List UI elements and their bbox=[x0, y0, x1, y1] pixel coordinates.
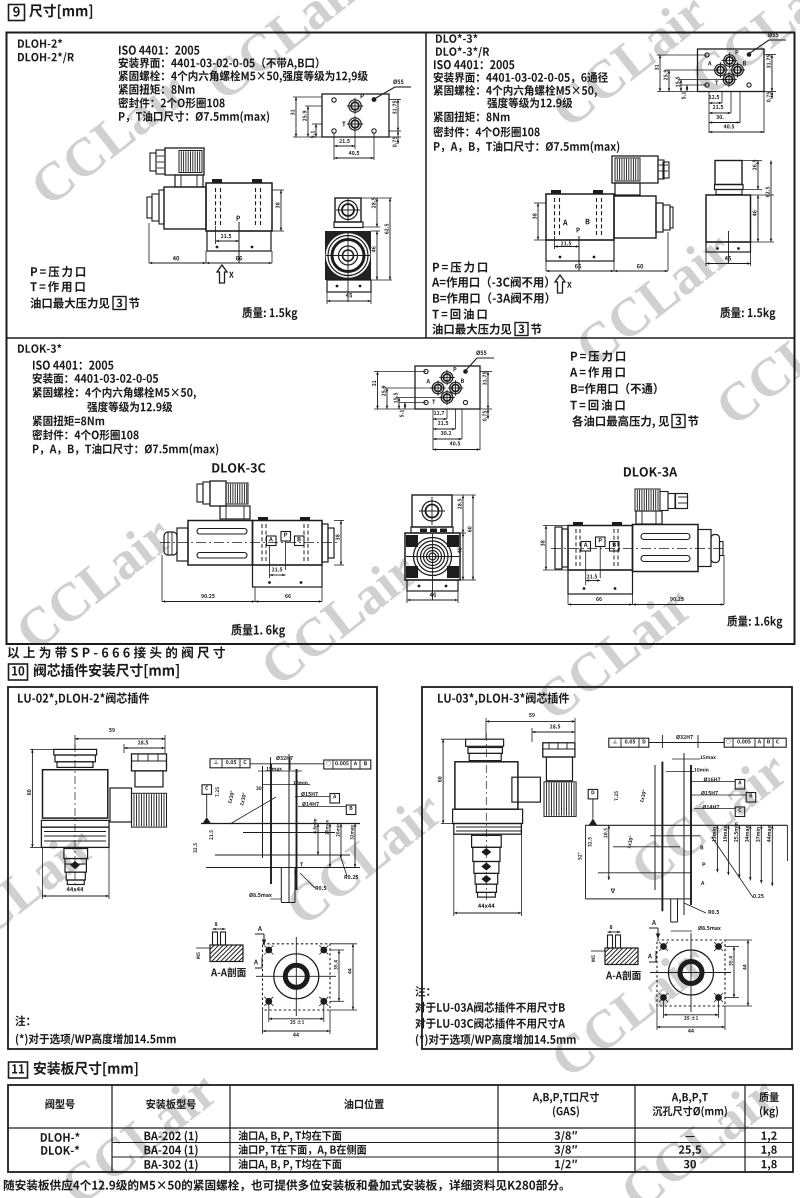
svg-text:CCLair: CCLair bbox=[704, 279, 800, 437]
svg-text:CCLair: CCLair bbox=[49, 1059, 228, 1198]
svg-text:CCLair: CCLair bbox=[19, 59, 198, 217]
svg-text:CCLair: CCLair bbox=[564, 219, 743, 377]
svg-text:CCLair: CCLair bbox=[249, 539, 428, 697]
svg-text:CCLair: CCLair bbox=[619, 739, 798, 897]
svg-text:CCLair: CCLair bbox=[0, 814, 106, 972]
svg-text:CCLair: CCLair bbox=[194, 0, 373, 112]
svg-text:CCLair: CCLair bbox=[4, 504, 183, 662]
svg-text:CCLair: CCLair bbox=[274, 779, 453, 937]
svg-text:CCLair: CCLair bbox=[524, 574, 703, 732]
